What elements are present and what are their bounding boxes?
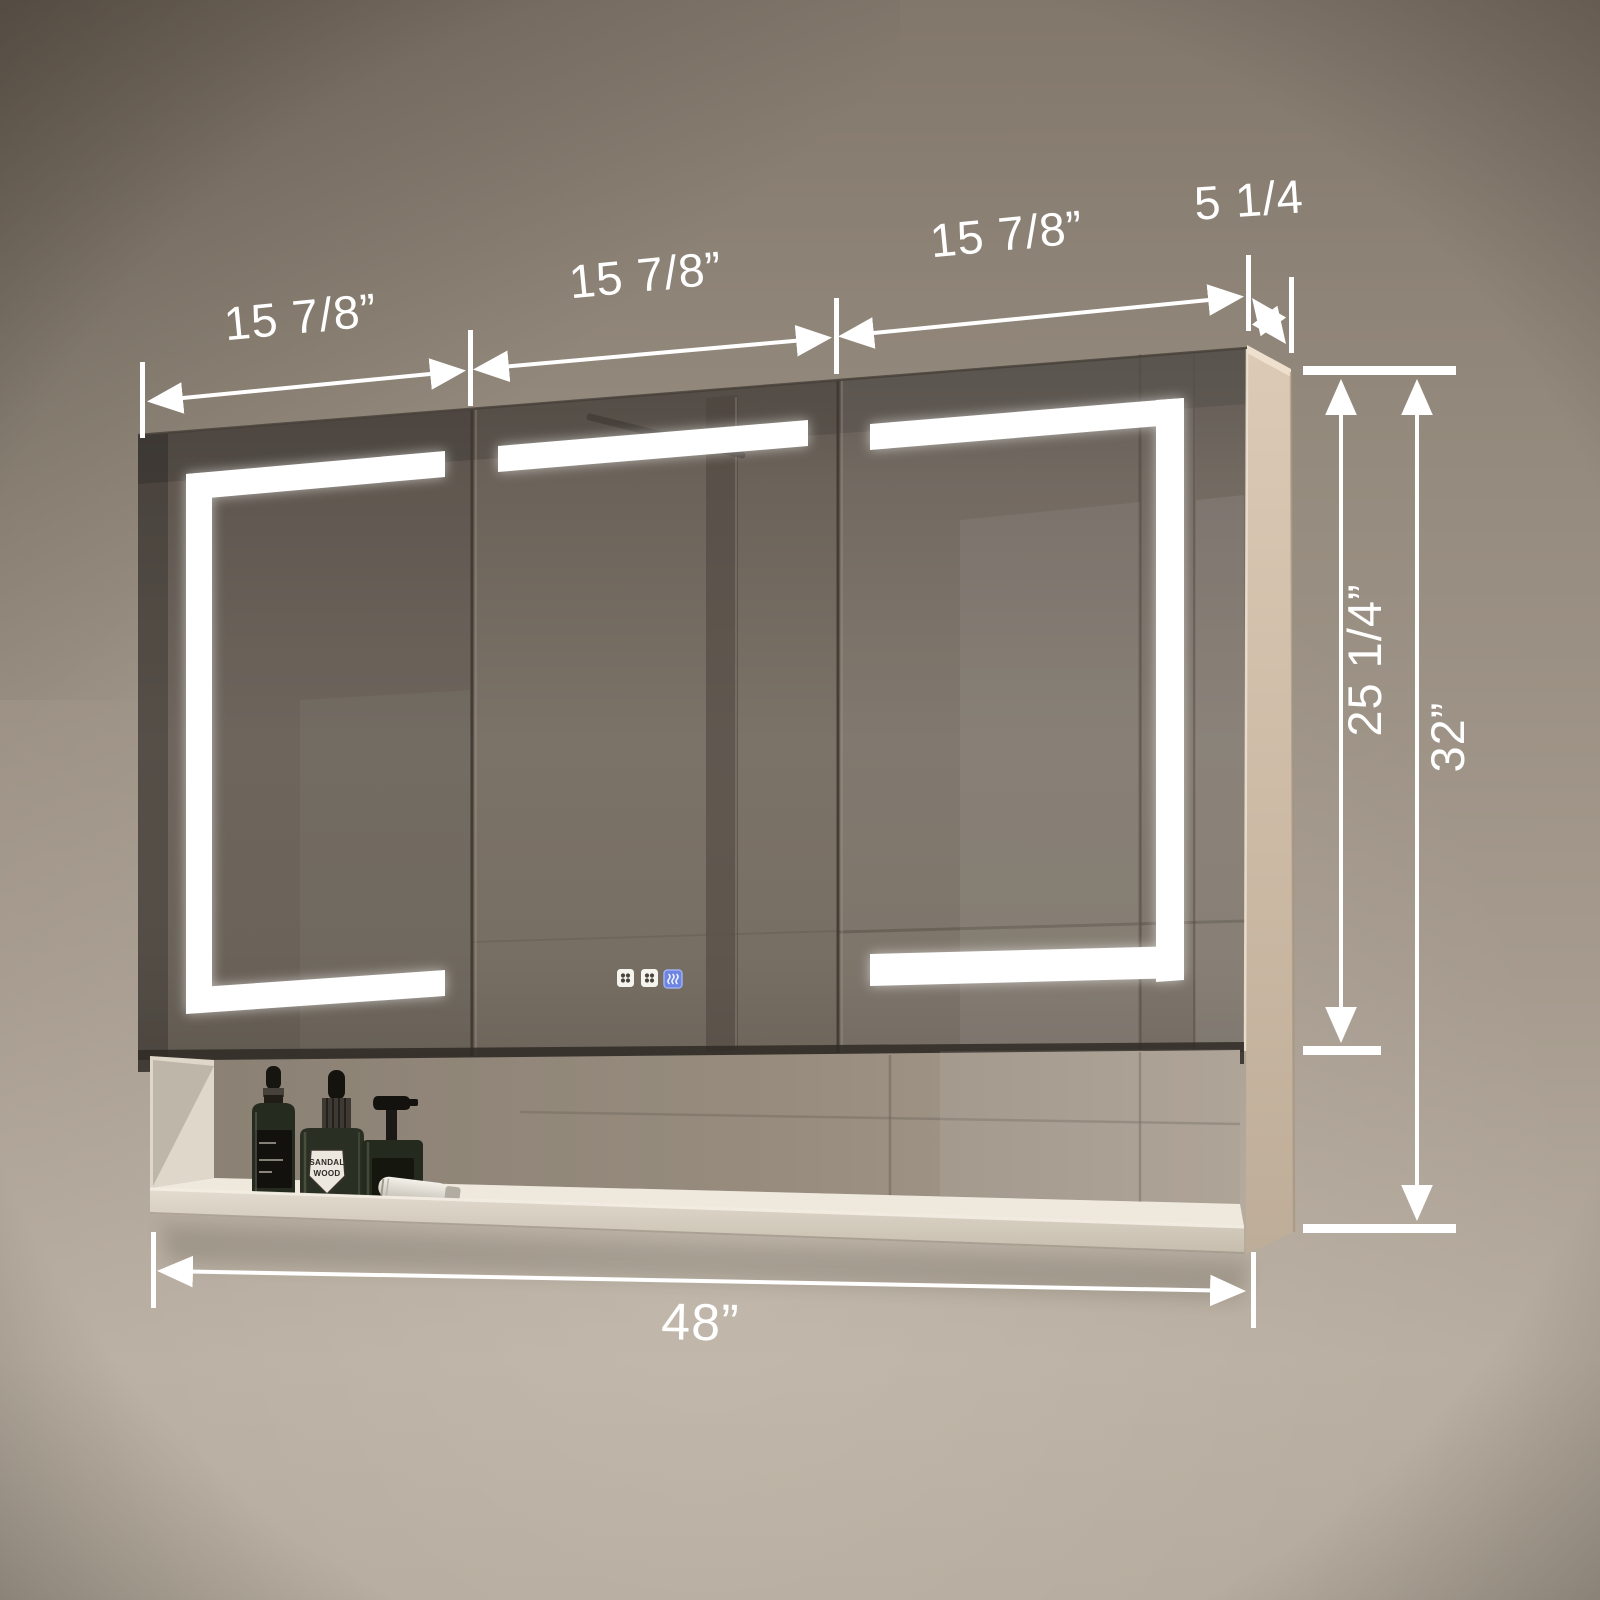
product-dimension-image: SANDAL WOOD <box>0 0 1600 1600</box>
vignette-overlay <box>0 0 1600 1600</box>
